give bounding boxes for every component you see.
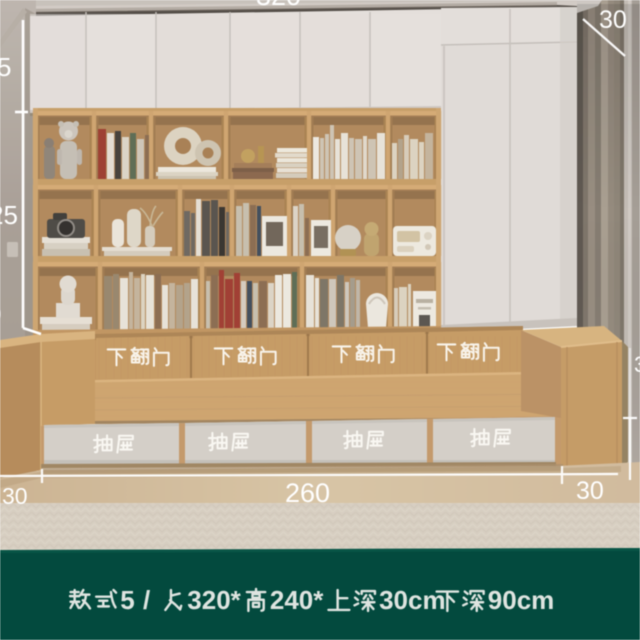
- svg-text:25: 25: [0, 200, 18, 230]
- svg-text:240*: 240*: [270, 585, 324, 615]
- svg-text:30: 30: [599, 6, 627, 34]
- svg-text:320: 320: [256, 0, 301, 11]
- svg-text:90cm: 90cm: [488, 585, 555, 615]
- svg-text:30cm: 30cm: [379, 585, 446, 615]
- svg-text:3: 3: [634, 352, 640, 377]
- svg-text:0: 0: [0, 299, 1, 329]
- svg-text:30: 30: [2, 483, 28, 509]
- svg-text:30: 30: [576, 477, 604, 505]
- svg-text:5: 5: [0, 52, 11, 82]
- svg-text:/: /: [136, 585, 158, 615]
- svg-text:320*: 320*: [187, 585, 241, 615]
- svg-text:5: 5: [120, 585, 134, 615]
- svg-text:260: 260: [285, 478, 330, 508]
